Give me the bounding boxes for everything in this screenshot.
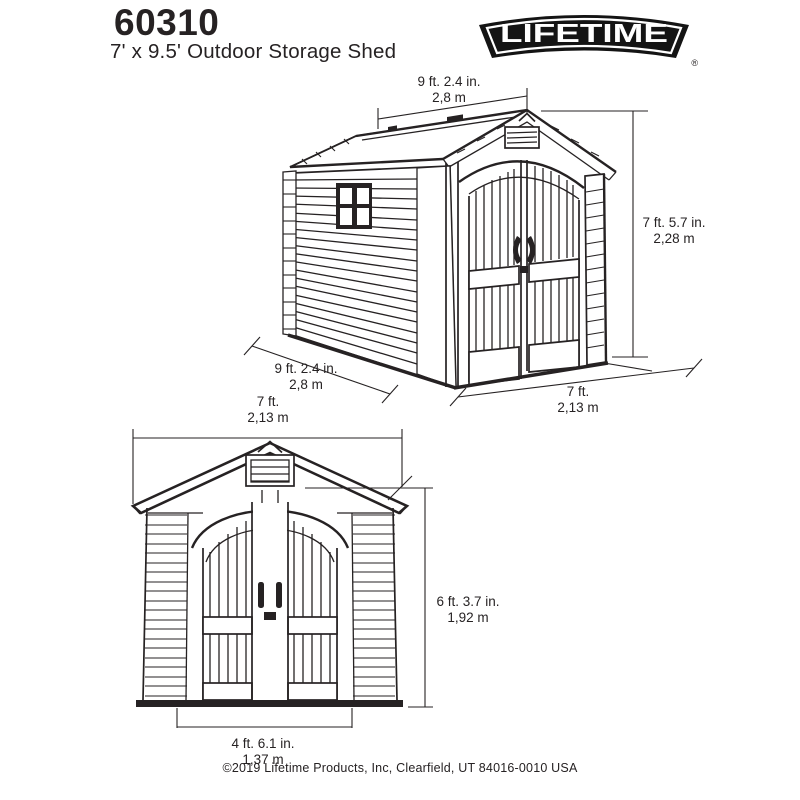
shed-front-drawing xyxy=(133,429,433,728)
front-door-mid-rail xyxy=(203,617,252,634)
door-mid-rail xyxy=(529,259,579,282)
dim-perspective-depth-top: 9 ft. 2.4 in. 2,8 m xyxy=(417,74,480,106)
front-door-lock-icon xyxy=(264,612,276,620)
front-door-handle-icon xyxy=(258,582,264,608)
dim-imperial-value: 9 ft. 2.4 in. xyxy=(274,361,337,377)
front-door-bottom-rail xyxy=(288,683,337,700)
dim-imperial-value: 9 ft. 2.4 in. xyxy=(417,74,480,90)
door-arch-inner xyxy=(469,177,579,199)
dim-perspective-height: 7 ft. 5.7 in. 2,28 m xyxy=(642,215,705,247)
dim-front-height: 6 ft. 3.7 in. 1,92 m xyxy=(436,594,499,626)
dim-imperial-value: 7 ft. xyxy=(557,384,598,400)
dim-imperial-value: 7 ft. 5.7 in. xyxy=(642,215,705,231)
dim-metric-value: 1,92 m xyxy=(436,610,499,626)
front-door-handle-icon xyxy=(276,582,282,608)
ground-sill xyxy=(136,700,403,707)
dim-imperial-value: 6 ft. 3.7 in. xyxy=(436,594,499,610)
dim-metric-value: 2,13 m xyxy=(557,400,598,416)
front-wall-left-edge xyxy=(143,508,147,700)
door-lock-icon xyxy=(520,266,528,273)
shed-perspective-drawing xyxy=(244,88,702,406)
front-siding-left xyxy=(145,515,187,696)
spec-sheet-page: 60310 7' x 9.5' Outdoor Storage Shed LIF… xyxy=(0,0,800,800)
door-handle-icon xyxy=(527,236,535,264)
door-mid-rail xyxy=(469,266,519,289)
dim-front-width: 7 ft. 2,13 m xyxy=(247,394,288,426)
front-door-bottom-rail xyxy=(203,683,252,700)
dim-imperial-value: 4 ft. 6.1 in. xyxy=(231,736,294,752)
front-double-doors xyxy=(192,490,348,700)
dim-metric-value: 2,8 m xyxy=(417,90,480,106)
side-window xyxy=(336,183,372,229)
copyright-line: ©2019 Lifetime Products, Inc, Clearfield… xyxy=(0,761,800,775)
corner-trim-back-left xyxy=(283,171,296,336)
dim-metric-value: 2,28 m xyxy=(642,231,705,247)
dim-metric-value: 2,8 m xyxy=(274,377,337,393)
dim-imperial-value: 7 ft. xyxy=(247,394,288,410)
dim-metric-value: 2,13 m xyxy=(247,410,288,426)
front-wall-right-edge xyxy=(393,508,397,700)
door-slats xyxy=(476,166,573,352)
double-doors xyxy=(459,160,584,385)
front-door-mid-rail xyxy=(288,617,337,634)
shed-diagrams xyxy=(0,0,800,800)
dim-perspective-width: 7 ft. 2,13 m xyxy=(557,384,598,416)
dim-perspective-depth-bottom: 9 ft. 2.4 in. 2,8 m xyxy=(274,361,337,393)
corner-trim-front-left xyxy=(417,166,456,388)
front-siding-right xyxy=(353,515,395,696)
